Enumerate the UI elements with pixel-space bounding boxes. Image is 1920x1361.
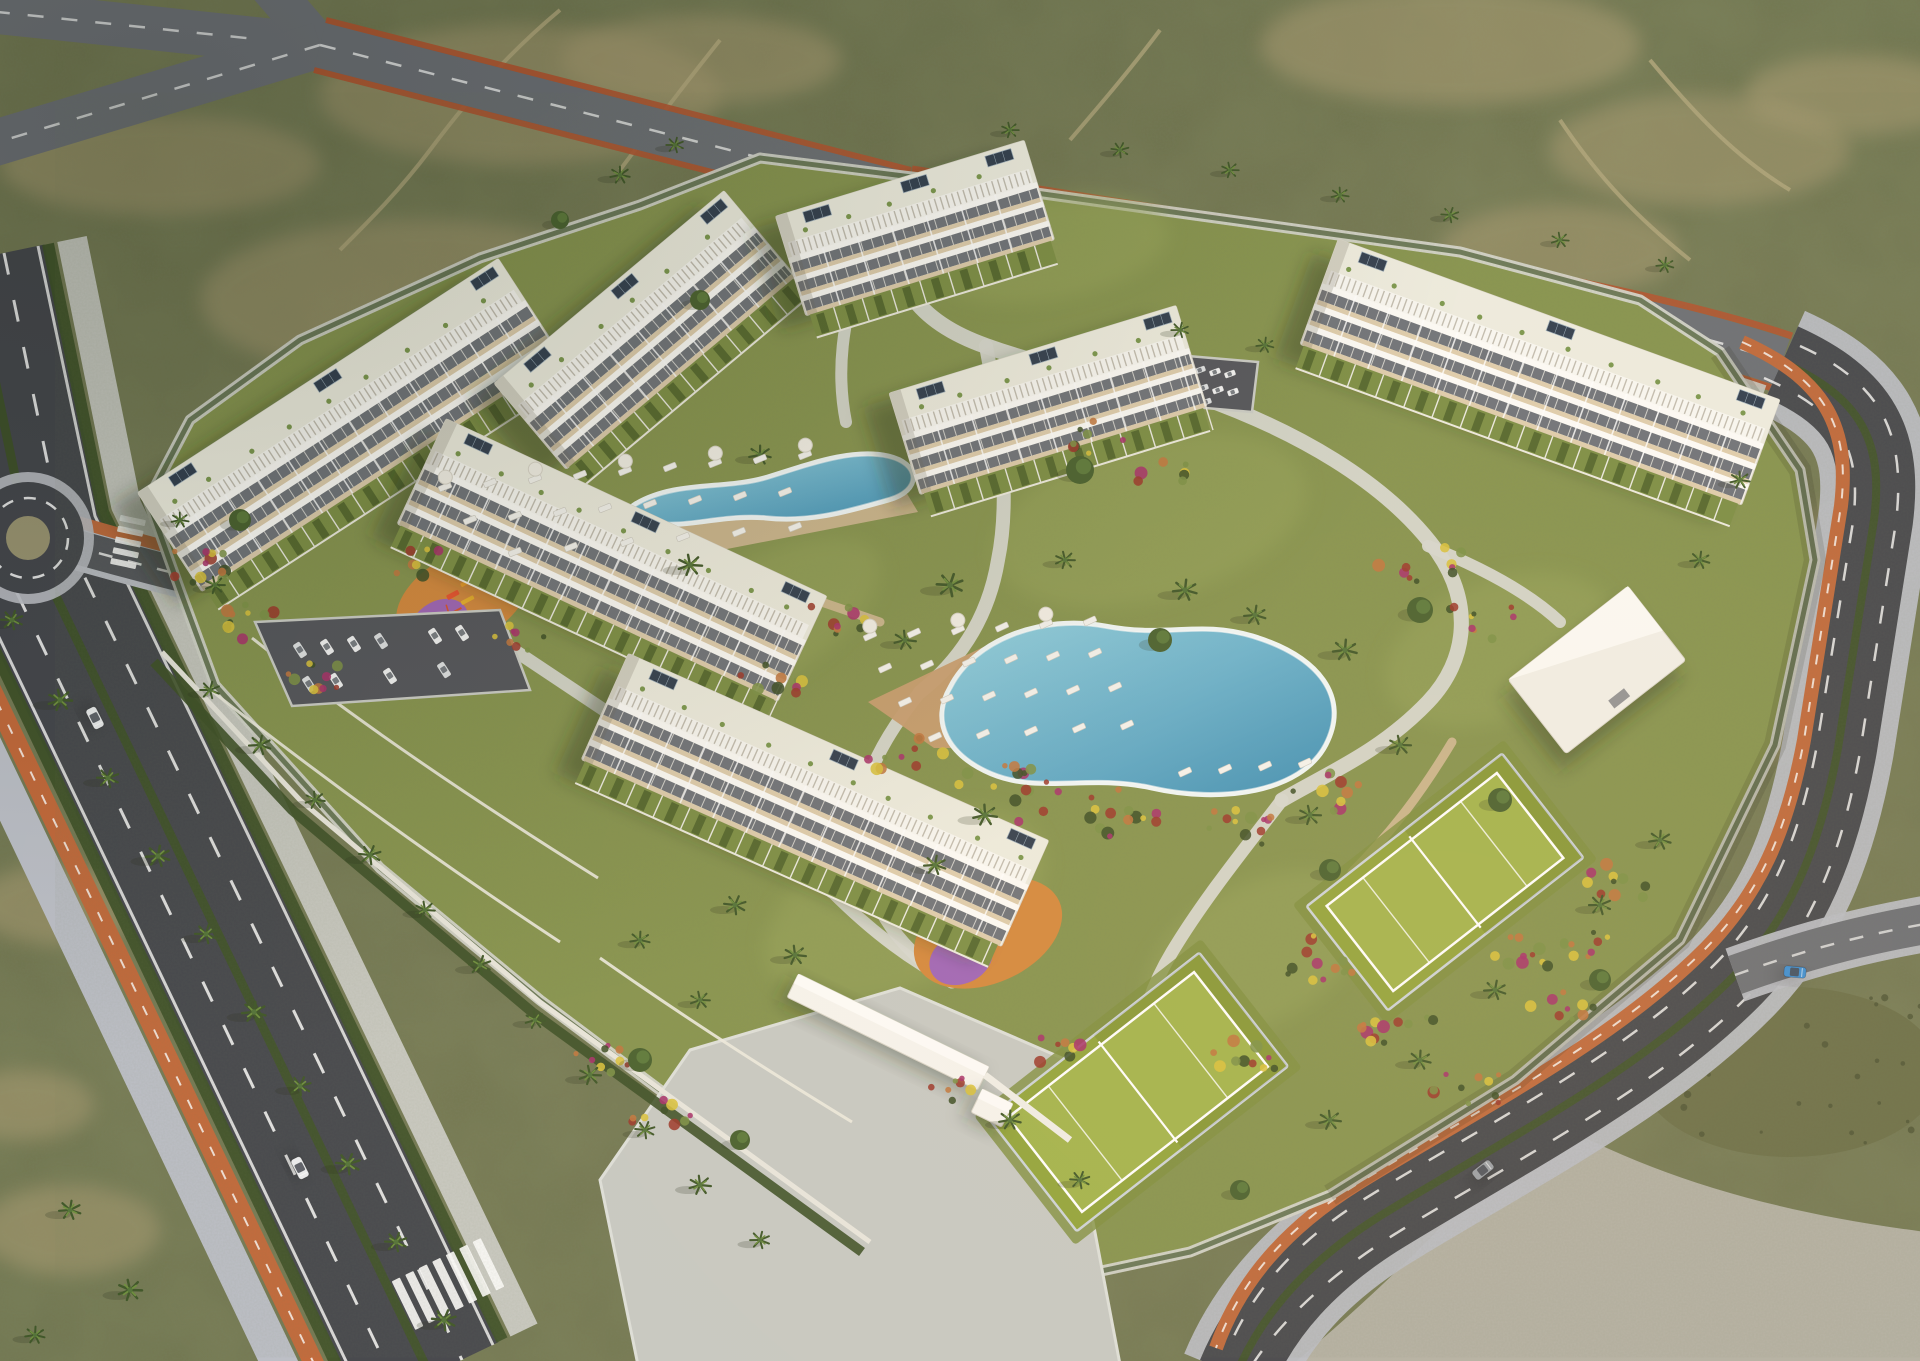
shrub xyxy=(687,1113,692,1118)
shrub xyxy=(1515,933,1524,942)
shrub xyxy=(954,780,963,789)
shrub xyxy=(791,688,801,698)
shrub xyxy=(1542,961,1553,972)
shrub xyxy=(1509,605,1515,611)
shrub xyxy=(309,685,318,694)
shrub xyxy=(1466,1101,1472,1107)
shrub xyxy=(1474,1073,1482,1081)
main-swimming-pool xyxy=(944,625,1332,793)
shrub xyxy=(1320,976,1326,982)
shrub xyxy=(202,548,209,555)
shrub xyxy=(601,1045,608,1052)
shrub xyxy=(1618,873,1629,884)
shrub xyxy=(1490,951,1500,961)
shrub xyxy=(1365,1036,1376,1047)
shrub xyxy=(1569,951,1579,961)
shrub xyxy=(1240,829,1251,840)
shrub xyxy=(1488,634,1497,643)
shrub xyxy=(1586,868,1596,878)
shrub xyxy=(525,647,530,652)
shrub xyxy=(1090,418,1097,425)
scene-svg xyxy=(0,0,1920,1361)
shrub xyxy=(737,672,744,679)
shrub xyxy=(260,610,270,620)
shrub xyxy=(1183,461,1189,467)
shrub xyxy=(219,550,227,558)
shrub xyxy=(1496,1100,1501,1105)
shrub xyxy=(1555,1011,1564,1020)
shrub xyxy=(267,606,279,618)
shrub xyxy=(669,1119,681,1131)
shrub xyxy=(1210,1049,1217,1056)
shrub xyxy=(1083,430,1092,439)
shrub xyxy=(1009,761,1020,772)
parking-lot xyxy=(255,610,530,706)
shrub xyxy=(1372,559,1385,572)
shrub xyxy=(1377,1020,1390,1033)
shrub xyxy=(1568,941,1574,947)
shrub xyxy=(1428,1015,1438,1025)
shrub xyxy=(1206,826,1211,831)
shrub xyxy=(641,1114,649,1122)
shrub xyxy=(286,671,291,676)
shrub xyxy=(1393,1017,1403,1027)
shrub xyxy=(1070,441,1077,448)
shrub xyxy=(1055,788,1062,795)
shrub xyxy=(1578,1009,1589,1020)
shrub xyxy=(1211,808,1218,815)
shrub xyxy=(1404,1019,1413,1028)
shrub xyxy=(1290,788,1295,793)
shrub xyxy=(762,662,769,669)
shrub xyxy=(1044,779,1049,784)
shrub xyxy=(1638,892,1648,902)
shrub xyxy=(1311,933,1316,938)
shrub xyxy=(1530,952,1535,957)
shrub xyxy=(937,747,949,759)
shrub xyxy=(1074,1039,1087,1052)
shrub xyxy=(1640,881,1650,891)
shrub xyxy=(1325,772,1332,779)
shrub xyxy=(1355,781,1362,788)
shrub xyxy=(772,682,785,695)
shrub xyxy=(541,634,546,639)
shrub xyxy=(1077,427,1082,432)
shrub xyxy=(1471,611,1476,616)
shrub xyxy=(1510,614,1517,621)
shrub xyxy=(589,1057,595,1063)
shrub xyxy=(322,672,331,681)
shrub xyxy=(1301,947,1312,958)
shrub xyxy=(1492,1092,1499,1099)
shrub xyxy=(334,685,339,690)
shrub xyxy=(1231,806,1240,815)
shrub xyxy=(237,633,248,644)
shrub xyxy=(949,1097,956,1104)
shrub xyxy=(306,660,313,667)
shrub xyxy=(1214,1060,1226,1072)
shrub xyxy=(1151,817,1161,827)
shrub xyxy=(864,755,873,764)
shrub xyxy=(1608,889,1620,901)
shrub xyxy=(1591,930,1596,935)
shrub xyxy=(1178,476,1187,485)
shrub xyxy=(953,1078,958,1083)
shrub xyxy=(1341,787,1353,799)
shrub xyxy=(1339,956,1348,965)
shrub xyxy=(1086,450,1091,455)
shrub xyxy=(1014,817,1023,826)
shrub xyxy=(1402,563,1411,572)
shrub xyxy=(1231,1056,1240,1065)
shrub xyxy=(1021,785,1032,796)
shrub xyxy=(911,761,921,771)
shrub xyxy=(1061,1038,1070,1047)
shrub xyxy=(1123,815,1133,825)
shrub xyxy=(1348,969,1355,976)
shrub xyxy=(412,560,421,569)
shrub xyxy=(1089,795,1095,801)
shrub xyxy=(680,1116,689,1125)
shrub xyxy=(1560,989,1566,995)
shrub xyxy=(1107,833,1113,839)
shrub xyxy=(195,572,207,584)
shrub xyxy=(222,621,234,633)
shrub xyxy=(1271,1065,1278,1072)
shrub xyxy=(1245,812,1257,824)
shrub xyxy=(319,685,326,692)
shrub xyxy=(573,1051,578,1056)
shrub xyxy=(1158,457,1168,467)
shrub xyxy=(1565,1006,1570,1011)
shrub xyxy=(245,610,250,615)
shrub xyxy=(1120,437,1126,443)
shrub xyxy=(1611,879,1617,885)
shrub xyxy=(1026,764,1037,775)
shrub xyxy=(1285,971,1290,976)
shrub xyxy=(834,623,841,630)
shrub xyxy=(492,634,498,640)
shrub xyxy=(911,745,918,752)
shrub xyxy=(1525,1000,1537,1012)
shrub xyxy=(1588,949,1595,956)
shrub xyxy=(630,1115,637,1122)
shrub xyxy=(416,569,429,582)
shrub xyxy=(1361,1022,1367,1028)
shrub xyxy=(1381,1039,1387,1045)
shrub xyxy=(959,1076,964,1081)
shrub xyxy=(870,763,883,776)
shrub xyxy=(1547,994,1558,1005)
shrub xyxy=(1261,817,1266,822)
shrub xyxy=(1034,1056,1046,1068)
shrub xyxy=(990,783,997,790)
shrub xyxy=(1133,476,1143,486)
shrub xyxy=(1009,794,1021,806)
shrub xyxy=(1533,942,1546,955)
shrub xyxy=(1569,1016,1574,1021)
shrub xyxy=(899,754,905,760)
shrub xyxy=(1496,1072,1501,1077)
shrub xyxy=(914,733,925,744)
shrub xyxy=(845,604,853,612)
shrub xyxy=(945,1087,951,1093)
shrub xyxy=(1440,543,1450,553)
shrub xyxy=(1336,797,1345,806)
shrub xyxy=(1450,603,1459,612)
shrub xyxy=(394,570,400,576)
shrub xyxy=(1503,958,1515,970)
shrub xyxy=(1124,806,1134,816)
shrub xyxy=(1249,1060,1257,1068)
shrub xyxy=(1259,841,1264,846)
shrub xyxy=(1330,807,1338,815)
shrub xyxy=(1316,785,1328,797)
shrub xyxy=(510,629,515,634)
shrub xyxy=(1257,827,1266,836)
shrub xyxy=(1039,807,1048,816)
shrub xyxy=(666,1099,678,1111)
shrub xyxy=(1115,786,1121,792)
shrub xyxy=(415,542,425,552)
shrub xyxy=(1055,1042,1060,1047)
shrub xyxy=(1038,1035,1045,1042)
shrub xyxy=(1443,1072,1448,1077)
shrub xyxy=(1331,964,1340,973)
shrub xyxy=(1266,1055,1271,1060)
shrub xyxy=(1600,858,1613,871)
shrub xyxy=(661,1107,668,1114)
shrub xyxy=(1002,763,1007,768)
shrub xyxy=(170,572,179,581)
shrub xyxy=(1260,1064,1268,1072)
shrub xyxy=(1223,814,1232,823)
shrub xyxy=(1468,625,1475,632)
shrub xyxy=(1267,814,1274,821)
shrub xyxy=(1458,1084,1465,1091)
shrub xyxy=(221,604,234,617)
shrub xyxy=(190,579,197,586)
shrub xyxy=(1335,776,1347,788)
shrub xyxy=(1582,877,1593,888)
shrub xyxy=(752,683,764,695)
shrub xyxy=(1227,1035,1240,1048)
shrub xyxy=(506,639,513,646)
shrub xyxy=(607,1068,616,1077)
shrub xyxy=(203,560,209,566)
shrub xyxy=(928,1084,935,1091)
shrub xyxy=(808,603,816,611)
shrub xyxy=(659,1096,667,1104)
shrub xyxy=(1593,937,1602,946)
shrub xyxy=(1429,1086,1438,1095)
shrub xyxy=(218,568,226,576)
shrub xyxy=(1605,934,1610,939)
shrub xyxy=(1560,938,1569,947)
shrub xyxy=(1312,958,1323,969)
shrub xyxy=(1456,547,1466,557)
shrub xyxy=(597,1063,606,1072)
shrub xyxy=(1589,1004,1596,1011)
shrub xyxy=(1577,999,1588,1010)
shrub xyxy=(1508,934,1514,940)
shrub xyxy=(1105,808,1116,819)
shrub xyxy=(1414,578,1420,584)
shrub xyxy=(405,546,415,556)
shrub xyxy=(1448,568,1458,578)
aerial-render-stage xyxy=(0,0,1920,1361)
shrub xyxy=(424,547,430,553)
shrub xyxy=(615,1046,623,1054)
shrub xyxy=(1341,969,1348,976)
shrub xyxy=(172,549,177,554)
shrub xyxy=(1232,819,1238,825)
shrub xyxy=(1516,956,1529,969)
shrub xyxy=(434,546,444,556)
shrub xyxy=(1140,815,1146,821)
shrub xyxy=(965,1084,976,1095)
shrub xyxy=(1084,812,1096,824)
shrub xyxy=(962,767,974,779)
shrub xyxy=(882,755,887,760)
shrub xyxy=(1250,1040,1262,1052)
shrub xyxy=(1484,1077,1493,1086)
shrub xyxy=(242,602,249,609)
shrub xyxy=(1308,975,1317,984)
shrub xyxy=(332,661,343,672)
